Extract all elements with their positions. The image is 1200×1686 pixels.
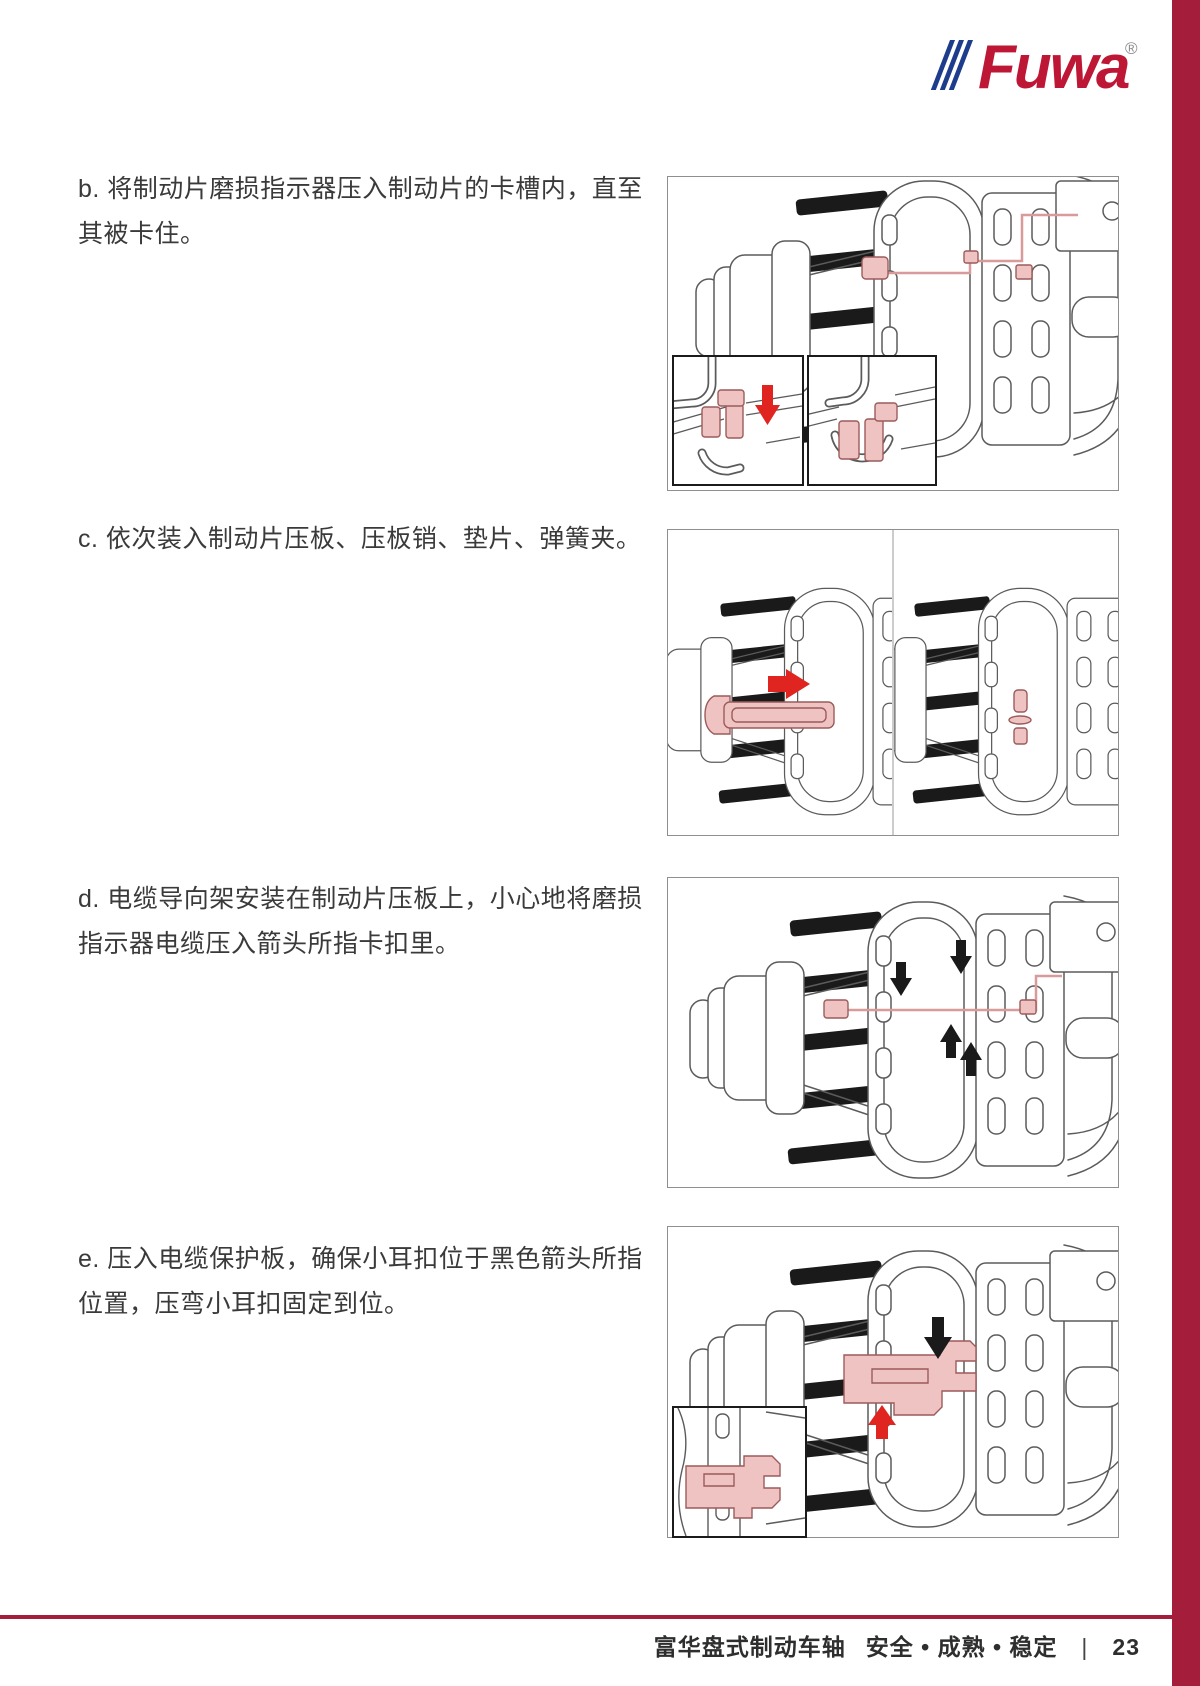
red-down-arrow-icon xyxy=(755,385,780,425)
step-d-text: d. 电缆导向架安装在制动片压板上，小心地将磨损指示器电缆压入箭头所指卡扣里。 xyxy=(78,877,654,967)
step-e-text: e. 压入电缆保护板，确保小耳扣位于黑色箭头所指位置，压弯小耳扣固定到位。 xyxy=(78,1237,654,1327)
logo-stripes-icon xyxy=(931,40,973,90)
figure-step-e-inset xyxy=(672,1406,807,1538)
manual-page: Fuwa ® b. 将制动片磨损指示器压入制动片的卡槽内，直至其被卡住。 c. … xyxy=(0,0,1200,1686)
figure-step-b-inset-press xyxy=(672,355,804,486)
protection-plate-clip-highlight xyxy=(686,1456,780,1518)
step-c-text: c. 依次装入制动片压板、压板销、垫片、弹簧夹。 xyxy=(78,517,654,562)
footer: 富华盘式制动车轴安全 • 成熟 • 稳定|23 xyxy=(654,1628,1140,1662)
brand-sidebar-bar xyxy=(1172,0,1200,1686)
fuwa-logo: Fuwa ® xyxy=(928,30,1144,102)
figure-step-c xyxy=(667,529,1119,836)
footer-rule xyxy=(0,1615,1172,1619)
registered-trademark: ® xyxy=(1125,39,1138,58)
pad-retainer-highlight xyxy=(705,696,834,734)
step-b-text: b. 将制动片磨损指示器压入制动片的卡槽内，直至其被卡住。 xyxy=(78,167,654,257)
logo-wordmark: Fuwa xyxy=(978,33,1129,102)
footer-page-number: 23 xyxy=(1112,1634,1140,1660)
brake-assembly-illustration xyxy=(690,896,1118,1178)
figure-step-b-inset-seated xyxy=(807,355,937,486)
footer-product-name: 富华盘式制动车轴 xyxy=(654,1634,846,1660)
footer-tagline: 安全 • 成熟 • 稳定 xyxy=(866,1634,1058,1660)
wear-indicator-clip-highlight xyxy=(839,403,897,461)
footer-separator: | xyxy=(1081,1634,1088,1660)
figure-step-d xyxy=(667,877,1119,1188)
